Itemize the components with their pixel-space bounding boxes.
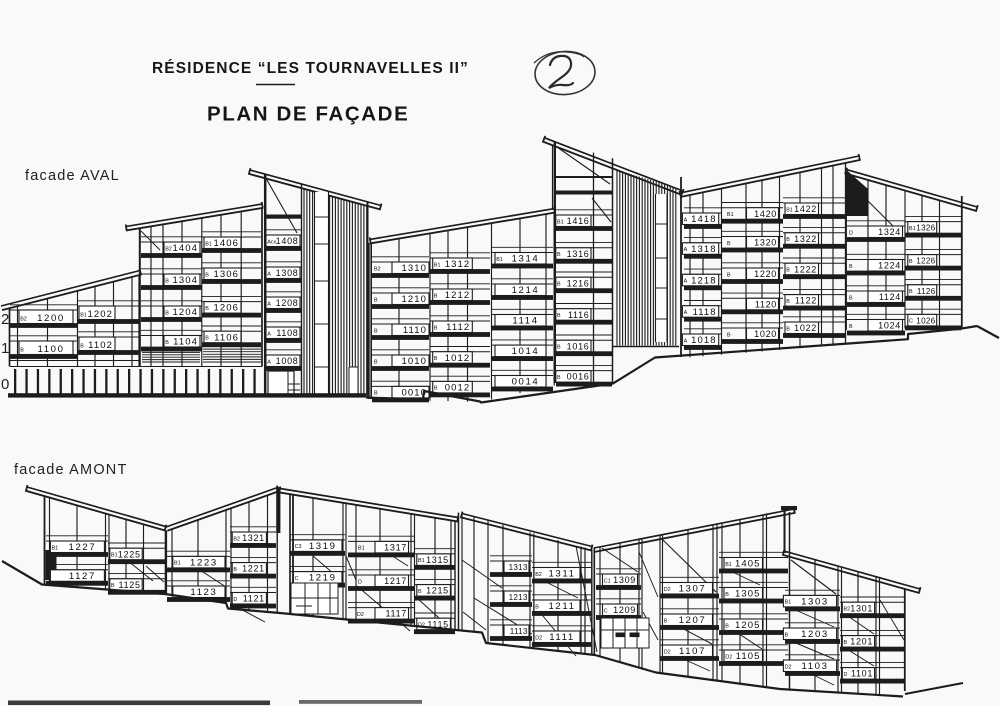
svg-text:B: B xyxy=(165,278,169,284)
svg-text:C: C xyxy=(604,608,608,614)
svg-text:1008: 1008 xyxy=(276,356,299,366)
svg-text:1422: 1422 xyxy=(794,204,817,214)
svg-text:1113: 1113 xyxy=(510,627,528,636)
svg-text:D2: D2 xyxy=(664,649,671,655)
svg-text:1318: 1318 xyxy=(691,244,717,255)
svg-text:B: B xyxy=(434,386,438,392)
svg-text:1216: 1216 xyxy=(567,278,590,288)
svg-text:B1: B1 xyxy=(727,212,734,218)
svg-text:1: 1 xyxy=(1,340,9,357)
svg-text:D: D xyxy=(844,672,848,678)
svg-text:1308: 1308 xyxy=(276,268,299,278)
svg-text:B: B xyxy=(786,268,790,274)
svg-text:1010: 1010 xyxy=(401,356,427,367)
svg-text:1321: 1321 xyxy=(242,533,265,543)
svg-text:1103: 1103 xyxy=(801,661,828,672)
svg-text:0016: 0016 xyxy=(567,372,590,382)
svg-text:B: B xyxy=(165,340,169,346)
svg-text:1112: 1112 xyxy=(446,322,470,333)
svg-text:1222: 1222 xyxy=(794,264,817,274)
svg-text:1026: 1026 xyxy=(916,317,935,326)
svg-text:1220: 1220 xyxy=(754,269,777,279)
svg-text:1200: 1200 xyxy=(37,313,65,324)
svg-text:B: B xyxy=(80,343,84,349)
svg-text:1307: 1307 xyxy=(679,584,707,595)
svg-text:B1: B1 xyxy=(418,558,425,564)
svg-text:B: B xyxy=(434,356,438,362)
svg-text:2: 2 xyxy=(1,311,9,328)
svg-text:A: A xyxy=(267,301,271,307)
svg-text:B: B xyxy=(374,359,378,365)
svg-text:B1: B1 xyxy=(111,553,118,559)
svg-text:1117: 1117 xyxy=(386,609,408,619)
svg-text:1124: 1124 xyxy=(879,292,901,302)
svg-text:B: B xyxy=(20,347,24,353)
svg-text:B1: B1 xyxy=(358,546,365,552)
svg-text:1315: 1315 xyxy=(426,555,449,565)
svg-text:1020: 1020 xyxy=(754,329,777,339)
svg-text:1110: 1110 xyxy=(403,325,427,336)
svg-text:B2: B2 xyxy=(844,607,851,613)
svg-text:facade AVAL: facade AVAL xyxy=(25,168,120,184)
svg-text:B1: B1 xyxy=(174,561,181,567)
svg-text:D: D xyxy=(233,597,237,603)
svg-text:1106: 1106 xyxy=(214,332,239,343)
svg-text:1303: 1303 xyxy=(801,597,829,608)
svg-text:1226: 1226 xyxy=(916,257,935,266)
svg-text:A: A xyxy=(267,271,271,277)
svg-text:B: B xyxy=(374,328,378,334)
svg-text:1022: 1022 xyxy=(794,323,817,333)
svg-text:1101: 1101 xyxy=(851,669,873,679)
svg-text:B: B xyxy=(434,293,438,299)
svg-text:1127: 1127 xyxy=(69,571,96,582)
svg-text:B2: B2 xyxy=(233,536,240,542)
svg-text:D2: D2 xyxy=(357,612,364,618)
svg-text:1326: 1326 xyxy=(916,224,935,233)
svg-text:C3: C3 xyxy=(295,544,302,550)
svg-text:1104: 1104 xyxy=(173,337,198,348)
svg-text:0014: 0014 xyxy=(512,377,540,388)
svg-text:Acx: Acx xyxy=(267,239,276,245)
svg-text:1309: 1309 xyxy=(613,575,636,585)
svg-text:1217: 1217 xyxy=(384,576,407,586)
svg-text:1215: 1215 xyxy=(426,586,449,596)
svg-text:1223: 1223 xyxy=(190,558,218,569)
svg-text:B2: B2 xyxy=(535,572,542,578)
svg-text:B: B xyxy=(725,623,729,629)
svg-text:1312: 1312 xyxy=(445,259,471,270)
svg-text:1213: 1213 xyxy=(509,593,528,602)
svg-text:1314: 1314 xyxy=(512,254,540,265)
svg-text:B: B xyxy=(205,336,209,342)
svg-text:1126: 1126 xyxy=(917,287,936,296)
svg-text:B: B xyxy=(434,325,438,331)
svg-text:B: B xyxy=(418,589,422,595)
svg-text:1116: 1116 xyxy=(568,310,590,320)
svg-text:1406: 1406 xyxy=(213,238,239,249)
svg-text:B: B xyxy=(557,345,561,351)
svg-text:1408: 1408 xyxy=(276,236,299,246)
svg-text:1211: 1211 xyxy=(548,601,575,612)
svg-text:1107: 1107 xyxy=(679,646,706,657)
svg-text:1416: 1416 xyxy=(567,216,590,226)
svg-text:A: A xyxy=(684,217,688,223)
svg-text:B: B xyxy=(664,618,668,624)
svg-text:1114: 1114 xyxy=(512,316,538,327)
svg-text:1209: 1209 xyxy=(613,605,636,615)
svg-text:B1: B1 xyxy=(52,545,59,551)
svg-text:1316: 1316 xyxy=(567,249,590,259)
svg-text:1207: 1207 xyxy=(679,615,707,626)
svg-text:B1: B1 xyxy=(205,241,212,247)
svg-text:B1: B1 xyxy=(909,226,916,232)
svg-text:1016: 1016 xyxy=(567,341,590,351)
svg-text:B1: B1 xyxy=(785,600,792,606)
svg-text:1100: 1100 xyxy=(37,344,64,355)
svg-text:1206: 1206 xyxy=(213,303,239,314)
svg-text:0: 0 xyxy=(1,376,9,393)
svg-text:A: A xyxy=(684,310,688,316)
svg-text:1320: 1320 xyxy=(754,238,777,248)
svg-text:1404: 1404 xyxy=(172,243,198,254)
svg-text:1102: 1102 xyxy=(88,340,113,351)
svg-text:B: B xyxy=(849,324,853,330)
svg-text:D2: D2 xyxy=(535,635,542,641)
svg-text:B1: B1 xyxy=(786,207,793,213)
svg-text:1227: 1227 xyxy=(69,542,97,553)
svg-text:1125: 1125 xyxy=(119,580,141,590)
svg-text:B: B xyxy=(909,289,913,295)
svg-text:B: B xyxy=(786,237,790,243)
svg-text:1208: 1208 xyxy=(276,298,299,308)
svg-text:1212: 1212 xyxy=(445,290,471,301)
svg-text:A: A xyxy=(684,279,688,285)
svg-text:1310: 1310 xyxy=(401,263,427,274)
svg-text:B: B xyxy=(374,391,378,397)
svg-text:B1: B1 xyxy=(496,257,503,263)
svg-text:A: A xyxy=(267,331,271,337)
svg-text:B: B xyxy=(111,583,115,589)
svg-text:B1: B1 xyxy=(725,562,732,568)
svg-text:1322: 1322 xyxy=(794,234,817,244)
svg-text:1121: 1121 xyxy=(243,594,265,604)
svg-text:1108: 1108 xyxy=(276,328,298,338)
svg-text:1205: 1205 xyxy=(735,620,761,631)
svg-text:C: C xyxy=(295,576,299,582)
svg-text:1014: 1014 xyxy=(512,346,540,357)
svg-text:B: B xyxy=(786,299,790,305)
svg-text:B2: B2 xyxy=(165,246,172,252)
svg-text:B: B xyxy=(727,241,731,247)
svg-text:1304: 1304 xyxy=(172,275,198,286)
svg-text:D: D xyxy=(849,230,853,236)
svg-text:B: B xyxy=(374,297,378,303)
svg-text:D: D xyxy=(358,579,362,585)
svg-text:A: A xyxy=(684,338,688,344)
svg-text:1120: 1120 xyxy=(755,299,777,309)
svg-text:RÉSIDENCE “LES TOURNAVELLES II: RÉSIDENCE “LES TOURNAVELLES II” xyxy=(152,60,469,77)
svg-text:B: B xyxy=(557,282,561,288)
svg-text:B1: B1 xyxy=(80,312,87,318)
svg-text:D2: D2 xyxy=(664,587,671,593)
svg-text:1225: 1225 xyxy=(118,549,141,559)
svg-text:1201: 1201 xyxy=(850,637,873,647)
svg-text:C: C xyxy=(909,319,913,325)
svg-text:1420: 1420 xyxy=(754,209,777,219)
svg-text:1012: 1012 xyxy=(445,353,471,364)
svg-text:1317: 1317 xyxy=(384,543,407,553)
svg-text:1418: 1418 xyxy=(691,214,717,225)
svg-text:B: B xyxy=(786,326,790,332)
svg-text:1221: 1221 xyxy=(242,564,265,574)
svg-text:1313: 1313 xyxy=(509,563,528,572)
svg-text:B: B xyxy=(727,272,731,278)
svg-text:1405: 1405 xyxy=(735,559,761,570)
svg-text:B: B xyxy=(557,313,561,319)
svg-text:C1: C1 xyxy=(604,578,611,584)
svg-text:B: B xyxy=(785,632,789,638)
svg-text:PLAN DE FAÇADE: PLAN DE FAÇADE xyxy=(207,103,409,126)
svg-text:1210: 1210 xyxy=(401,294,427,305)
svg-text:D2: D2 xyxy=(725,654,732,660)
svg-text:1319: 1319 xyxy=(309,541,337,552)
svg-text:1203: 1203 xyxy=(801,629,829,640)
svg-text:1111: 1111 xyxy=(549,632,575,643)
svg-text:1219: 1219 xyxy=(309,573,337,584)
svg-text:B1: B1 xyxy=(434,262,441,268)
svg-text:facade AMONT: facade AMONT xyxy=(14,462,128,478)
svg-text:B: B xyxy=(844,640,848,646)
svg-text:B: B xyxy=(165,310,169,316)
svg-text:B: B xyxy=(557,252,561,258)
svg-text:1324: 1324 xyxy=(878,227,901,237)
svg-text:B: B xyxy=(725,592,729,598)
svg-text:1024: 1024 xyxy=(878,321,901,331)
svg-text:1204: 1204 xyxy=(172,307,198,318)
svg-text:B: B xyxy=(205,272,209,278)
svg-text:1105: 1105 xyxy=(736,651,761,662)
svg-text:B: B xyxy=(233,567,237,573)
svg-text:B2: B2 xyxy=(374,266,381,272)
svg-text:B: B xyxy=(535,604,539,610)
svg-text:B: B xyxy=(849,295,853,301)
svg-text:B: B xyxy=(557,375,561,381)
svg-text:1224: 1224 xyxy=(878,261,901,271)
svg-text:1018: 1018 xyxy=(691,335,717,346)
svg-text:D2: D2 xyxy=(785,664,792,670)
svg-text:B: B xyxy=(205,306,209,312)
svg-text:0012: 0012 xyxy=(445,383,471,394)
svg-text:1301: 1301 xyxy=(850,603,873,613)
svg-text:B: B xyxy=(909,259,913,265)
svg-text:A: A xyxy=(267,359,271,365)
svg-text:1202: 1202 xyxy=(87,309,113,320)
svg-text:1122: 1122 xyxy=(795,296,817,306)
svg-text:1123: 1123 xyxy=(190,587,217,598)
svg-text:1305: 1305 xyxy=(735,589,761,600)
svg-text:1118: 1118 xyxy=(693,307,717,318)
svg-text:B: B xyxy=(849,264,853,270)
svg-text:B1: B1 xyxy=(557,219,564,225)
svg-text:1214: 1214 xyxy=(512,285,540,296)
svg-text:A: A xyxy=(684,247,688,253)
svg-text:1311: 1311 xyxy=(548,569,575,580)
svg-text:B: B xyxy=(727,332,731,338)
svg-text:1218: 1218 xyxy=(691,275,717,286)
svg-text:B2: B2 xyxy=(20,316,27,322)
svg-text:1306: 1306 xyxy=(213,269,239,280)
